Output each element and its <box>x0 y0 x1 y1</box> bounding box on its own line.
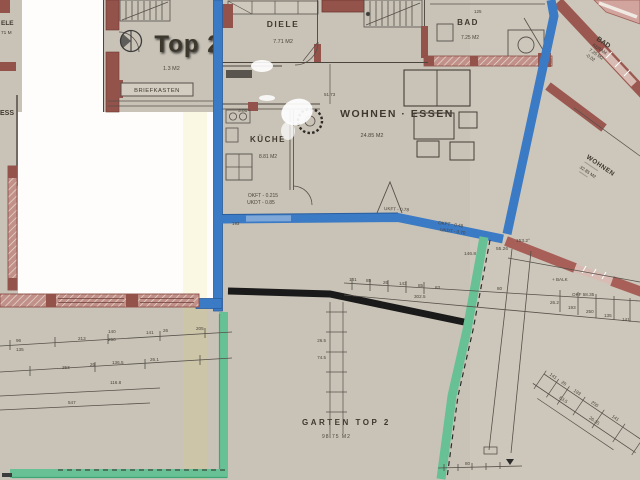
white-blob <box>251 60 273 72</box>
floorplan-svg: ELE 71 M ESS 1.3 M2 BRIEFKASTEN Top 2 <box>0 0 640 480</box>
dim-label: 135 <box>604 313 612 318</box>
wall-hatched <box>8 166 17 290</box>
dim-label: 136.5 <box>112 360 124 365</box>
wall-hatched <box>0 294 199 307</box>
wall-hatched <box>424 56 552 66</box>
dim-label: 193 <box>568 305 576 310</box>
dim-label: 141 <box>349 277 357 282</box>
angle-label: 146.8 <box>464 251 476 257</box>
briefkasten-label: BRIEFKASTEN <box>134 88 180 94</box>
bad-name: BAD <box>457 18 479 27</box>
dim-label: 74.5 <box>317 355 326 360</box>
dim-label: 250 <box>586 309 594 314</box>
dim-label: 140 <box>108 329 116 334</box>
wall-post <box>424 56 434 66</box>
bottom-facade-wall <box>0 294 199 307</box>
dim-label: 302.5 <box>414 294 426 299</box>
dim-label: 143 <box>399 281 407 286</box>
threshold <box>226 70 252 78</box>
dim-label: 26 <box>163 328 169 333</box>
wall-post <box>8 278 17 290</box>
unit-overlay-label: Top 2 <box>154 31 221 58</box>
dim-label: 85 <box>366 278 372 283</box>
garten-name: GARTEN TOP 2 <box>302 418 391 427</box>
wall-post <box>8 166 17 178</box>
dim-label: 96 <box>16 338 22 343</box>
blue-wall-vertical <box>214 0 223 311</box>
dim-label: 26.1 <box>150 357 159 362</box>
dim-label: 83 <box>435 285 441 290</box>
wall <box>322 0 364 12</box>
wall <box>421 26 428 58</box>
floor-level-label: OKFT - 0.215 <box>248 193 278 199</box>
dim-label: 193 <box>232 221 240 226</box>
wohnen-essen-area: 24.85 M2 <box>361 133 384 139</box>
white-blob <box>281 122 295 140</box>
dim-label: 135 <box>16 347 24 352</box>
room-label-fragment: ELE <box>1 20 14 27</box>
dim-label: 26.5 <box>317 338 326 343</box>
dim-label: 250 <box>108 337 116 342</box>
white-blob <box>259 95 275 101</box>
diele-area: 7.71 M2 <box>273 39 293 45</box>
dim-label: 141 <box>146 330 154 335</box>
boundary-mark <box>2 473 12 477</box>
dim-label: 116.8 <box>110 380 122 385</box>
garten-area: 98.75 M2 <box>322 434 351 440</box>
stair-start-dot <box>366 12 370 16</box>
wall-fragment <box>0 62 16 71</box>
angle-label: 153.2° <box>516 238 530 244</box>
balk-label: + BALK <box>552 277 569 282</box>
closet <box>228 1 318 14</box>
blue-wall-cap <box>196 299 222 309</box>
kueche-area: 8.81 M2 <box>259 154 277 160</box>
dim-label: 51.73 <box>324 92 336 97</box>
dim-label: 26.2 <box>550 300 559 305</box>
dim-label: 253 <box>62 365 70 370</box>
wall-post <box>470 56 478 66</box>
floorplan-scan: ELE 71 M ESS 1.3 M2 BRIEFKASTEN Top 2 <box>0 0 640 480</box>
bad-area: 7.25 M2 <box>461 35 479 41</box>
diele-name: DIELE <box>267 19 300 29</box>
dim-label: 80 <box>497 286 503 291</box>
okf-label: OKF 58.35 <box>572 292 595 297</box>
dim-label: 547 <box>68 400 76 405</box>
ceiling-level-label: UKDT - 0.85 <box>247 200 275 206</box>
wall-fragment <box>0 0 10 13</box>
dim-label: 141 <box>622 317 630 322</box>
area-label-fragment: 71 M <box>1 30 12 36</box>
dim-label: 205 <box>196 326 204 331</box>
wohnen-essen-name: WOHNEN · ESSEN <box>340 108 454 120</box>
kueche-name: KÜCHE <box>250 135 286 144</box>
dim-label: 85 <box>418 283 424 288</box>
vorraum-area-label: 1.3 M2 <box>163 66 180 72</box>
room-label-fragment: ESS <box>0 110 14 117</box>
dim-label: 26 <box>90 362 96 367</box>
dim-label: 55.26 <box>496 246 508 252</box>
dim-label: 26 <box>383 280 389 285</box>
wall-post <box>46 294 56 307</box>
wall <box>222 4 233 28</box>
dim-label: 213 <box>78 336 86 341</box>
wall-post <box>126 294 138 307</box>
dim-label: 80 <box>465 461 471 466</box>
dim-label: 125 <box>474 9 482 14</box>
wall <box>106 0 119 30</box>
